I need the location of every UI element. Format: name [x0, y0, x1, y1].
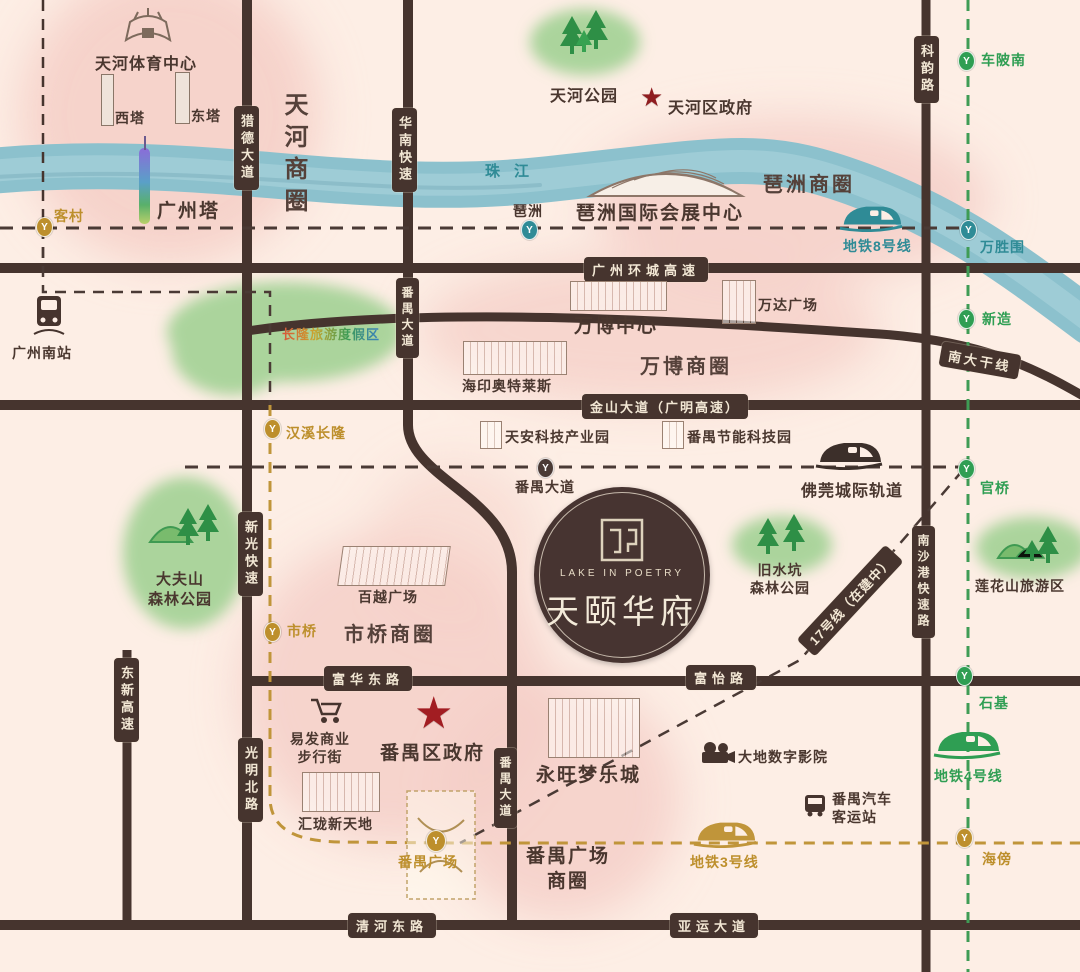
- district-wanbo-label: 万博商圈: [640, 350, 732, 379]
- panyu-tech-park-label: 番禺节能科技园: [687, 427, 792, 447]
- road-plate-keyun: 科韵路: [914, 36, 939, 103]
- tianan-park-icon: [480, 421, 502, 449]
- road-plate-qinghe: 清河东路: [348, 913, 436, 938]
- district-shiqiao-label: 市桥商圈: [344, 618, 436, 647]
- wanbo-center-label: 万博中心: [574, 311, 658, 338]
- road-plate-nansha: 南沙港快速路: [912, 526, 935, 638]
- east-tower-label: 东塔: [191, 106, 221, 126]
- yifa-street-label: 易发商业 步行街: [290, 730, 350, 766]
- location-map: 天河体育中心 西塔 东塔 广州塔 天河商圈 猎德大道 华南快速 科韵路 Y 客村…: [0, 0, 1080, 972]
- road-plate-huanan: 华南快速: [392, 108, 417, 192]
- metro-line3-label: 地铁3号线: [690, 852, 759, 872]
- tianhe-park-label: 天河公园: [550, 82, 618, 106]
- road-plate-jinshan: 金山大道（广明高速）: [582, 394, 748, 419]
- road-plate-fuyi: 富怡路: [686, 665, 756, 690]
- intercity-rail-label: 佛莞城际轨道: [801, 477, 903, 501]
- metro-station-icon-hanxichanglong: Y: [264, 419, 281, 439]
- road-plate-yayun: 亚运大道: [670, 913, 758, 938]
- tianhe-sports-label: 天河体育中心: [95, 50, 197, 74]
- panyu-tech-park-icon: [662, 421, 684, 449]
- wanda-plaza-icon: [722, 280, 756, 324]
- baiyue-plaza-label: 百越广场: [358, 587, 418, 607]
- bus-icon: [803, 793, 829, 819]
- canton-tower-label: 广州塔: [157, 196, 220, 223]
- jiushuikeng-label: 旧水坑 森林公园: [750, 561, 810, 597]
- metro-station-icon-shiqiao: Y: [264, 622, 281, 642]
- station-hanxichanglong-label: 汉溪长隆: [286, 423, 346, 443]
- shopping-cart-icon: [308, 696, 348, 726]
- panyu-gov-label: 番禺区政府: [380, 738, 485, 765]
- aeon-mall-label: 永旺梦乐城: [536, 760, 641, 787]
- tianhe-gov-star-icon: ★: [640, 84, 663, 110]
- train-station-icon-gzsouth: [32, 294, 66, 338]
- project-logo: LAKE IN POETRY 天颐华府: [534, 487, 710, 663]
- station-panyudadao-label: 番禺大道: [515, 477, 575, 497]
- metro-station-icon-xinzao: Y: [958, 309, 975, 329]
- road-plate-panyu-mid: 番禺大道: [396, 278, 419, 358]
- mountain-trees-icon-lianhuashan: [996, 518, 1072, 572]
- trees-icon-tianhe-park: [552, 8, 622, 74]
- metro-station-icon-chebeinan: Y: [958, 51, 975, 71]
- station-shiji-label: 石基: [979, 693, 1009, 713]
- road-plate-xinguang: 新光快速: [238, 512, 263, 596]
- metro-station-icon-shiji: Y: [956, 666, 973, 686]
- road-plate-liede: 猎德大道: [234, 106, 259, 190]
- district-tianhe-label: 天河商圈: [276, 92, 311, 220]
- train-icon-line4: [932, 724, 1002, 760]
- road-plate-panyu-bottom: 番禺大道: [494, 748, 517, 828]
- dafushan-label: 大夫山 森林公园: [148, 570, 212, 609]
- river-label: 珠江: [485, 160, 543, 181]
- district-panyusquare-label: 番禺广场 商圈: [526, 845, 610, 894]
- road-plate-ring-expwy: 广州环城高速: [584, 257, 708, 282]
- station-kecun-label: 客村: [54, 206, 84, 226]
- metro-station-icon-panyudadao: Y: [537, 458, 554, 478]
- aeon-mall-icon: [548, 698, 640, 758]
- dadi-cinema-label: 大地数字影院: [738, 747, 828, 767]
- road-plate-fuhua: 富华东路: [324, 666, 412, 691]
- canton-tower-icon: [139, 148, 150, 224]
- metro-line8-label: 地铁8号线: [843, 236, 912, 256]
- station-wanshengwei-label: 万胜围: [980, 237, 1025, 257]
- metro-station-icon-wanshengwei: Y: [960, 220, 977, 240]
- metro-station-icon-pazhou: Y: [521, 220, 538, 240]
- gz-south-label: 广州南站: [12, 343, 72, 363]
- west-tower-icon: [101, 74, 114, 126]
- stadium-icon: [120, 6, 176, 48]
- mountain-trees-icon-dafushan: [146, 496, 226, 558]
- wanbo-center-icon: [570, 281, 667, 311]
- station-guanqiao-label: 官桥: [980, 478, 1010, 498]
- station-panyusquare-label: 番禺广场: [398, 852, 458, 872]
- haiyin-outlets-label: 海印奥特莱斯: [462, 376, 552, 396]
- wanda-plaza-label: 万达广场: [758, 295, 818, 315]
- panyu-gov-star-icon: ★: [414, 692, 453, 736]
- cinema-projector-icon: [698, 740, 736, 768]
- changlong-logo: 长隆旅游度假区: [282, 324, 380, 343]
- district-pazhou-label: 琶洲商圈: [763, 168, 855, 197]
- station-xinzao-label: 新造: [982, 309, 1012, 329]
- metro-line4-label: 地铁4号线: [934, 766, 1003, 786]
- huilong-label: 汇珑新天地: [298, 814, 373, 834]
- metro-station-icon-haibang: Y: [956, 828, 973, 848]
- expo-center-icon: [582, 150, 750, 200]
- tianhe-gov-label: 天河区政府: [668, 94, 753, 118]
- metro-station-icon-guanqiao: Y: [958, 459, 975, 479]
- train-icon-line3: [692, 816, 758, 848]
- station-pazhou-label: 琶洲: [513, 201, 543, 221]
- station-shiqiao-label: 市桥: [287, 621, 317, 641]
- lianhuashan-label: 莲花山旅游区: [975, 576, 1065, 596]
- train-icon-intercity: [814, 436, 884, 470]
- haiyin-outlets-icon: [463, 341, 567, 375]
- station-haibang-label: 海傍: [982, 849, 1012, 869]
- road-plate-guangming: 光明北路: [238, 738, 263, 822]
- huilong-icon: [302, 772, 380, 812]
- metro-station-icon-kecun: Y: [36, 217, 53, 237]
- west-tower-label: 西塔: [115, 108, 145, 128]
- road-plate-dongxin: 东新高速: [114, 658, 139, 742]
- canton-tower-antenna: [144, 136, 146, 150]
- pazhou-expo-label: 琶洲国际会展中心: [576, 198, 744, 225]
- baiyue-plaza-icon: [337, 546, 451, 586]
- station-chebeinan-label: 车陂南: [981, 50, 1026, 70]
- logo-ring: [539, 492, 705, 658]
- tianan-park-label: 天安科技产业园: [505, 427, 610, 447]
- bus-station-label: 番禺汽车 客运站: [832, 790, 892, 826]
- metro-station-icon-panyusquare: Y: [426, 830, 446, 852]
- train-icon-line8: [838, 200, 904, 232]
- trees-icon-jiushuikeng: [752, 512, 814, 562]
- east-tower-icon: [175, 72, 190, 124]
